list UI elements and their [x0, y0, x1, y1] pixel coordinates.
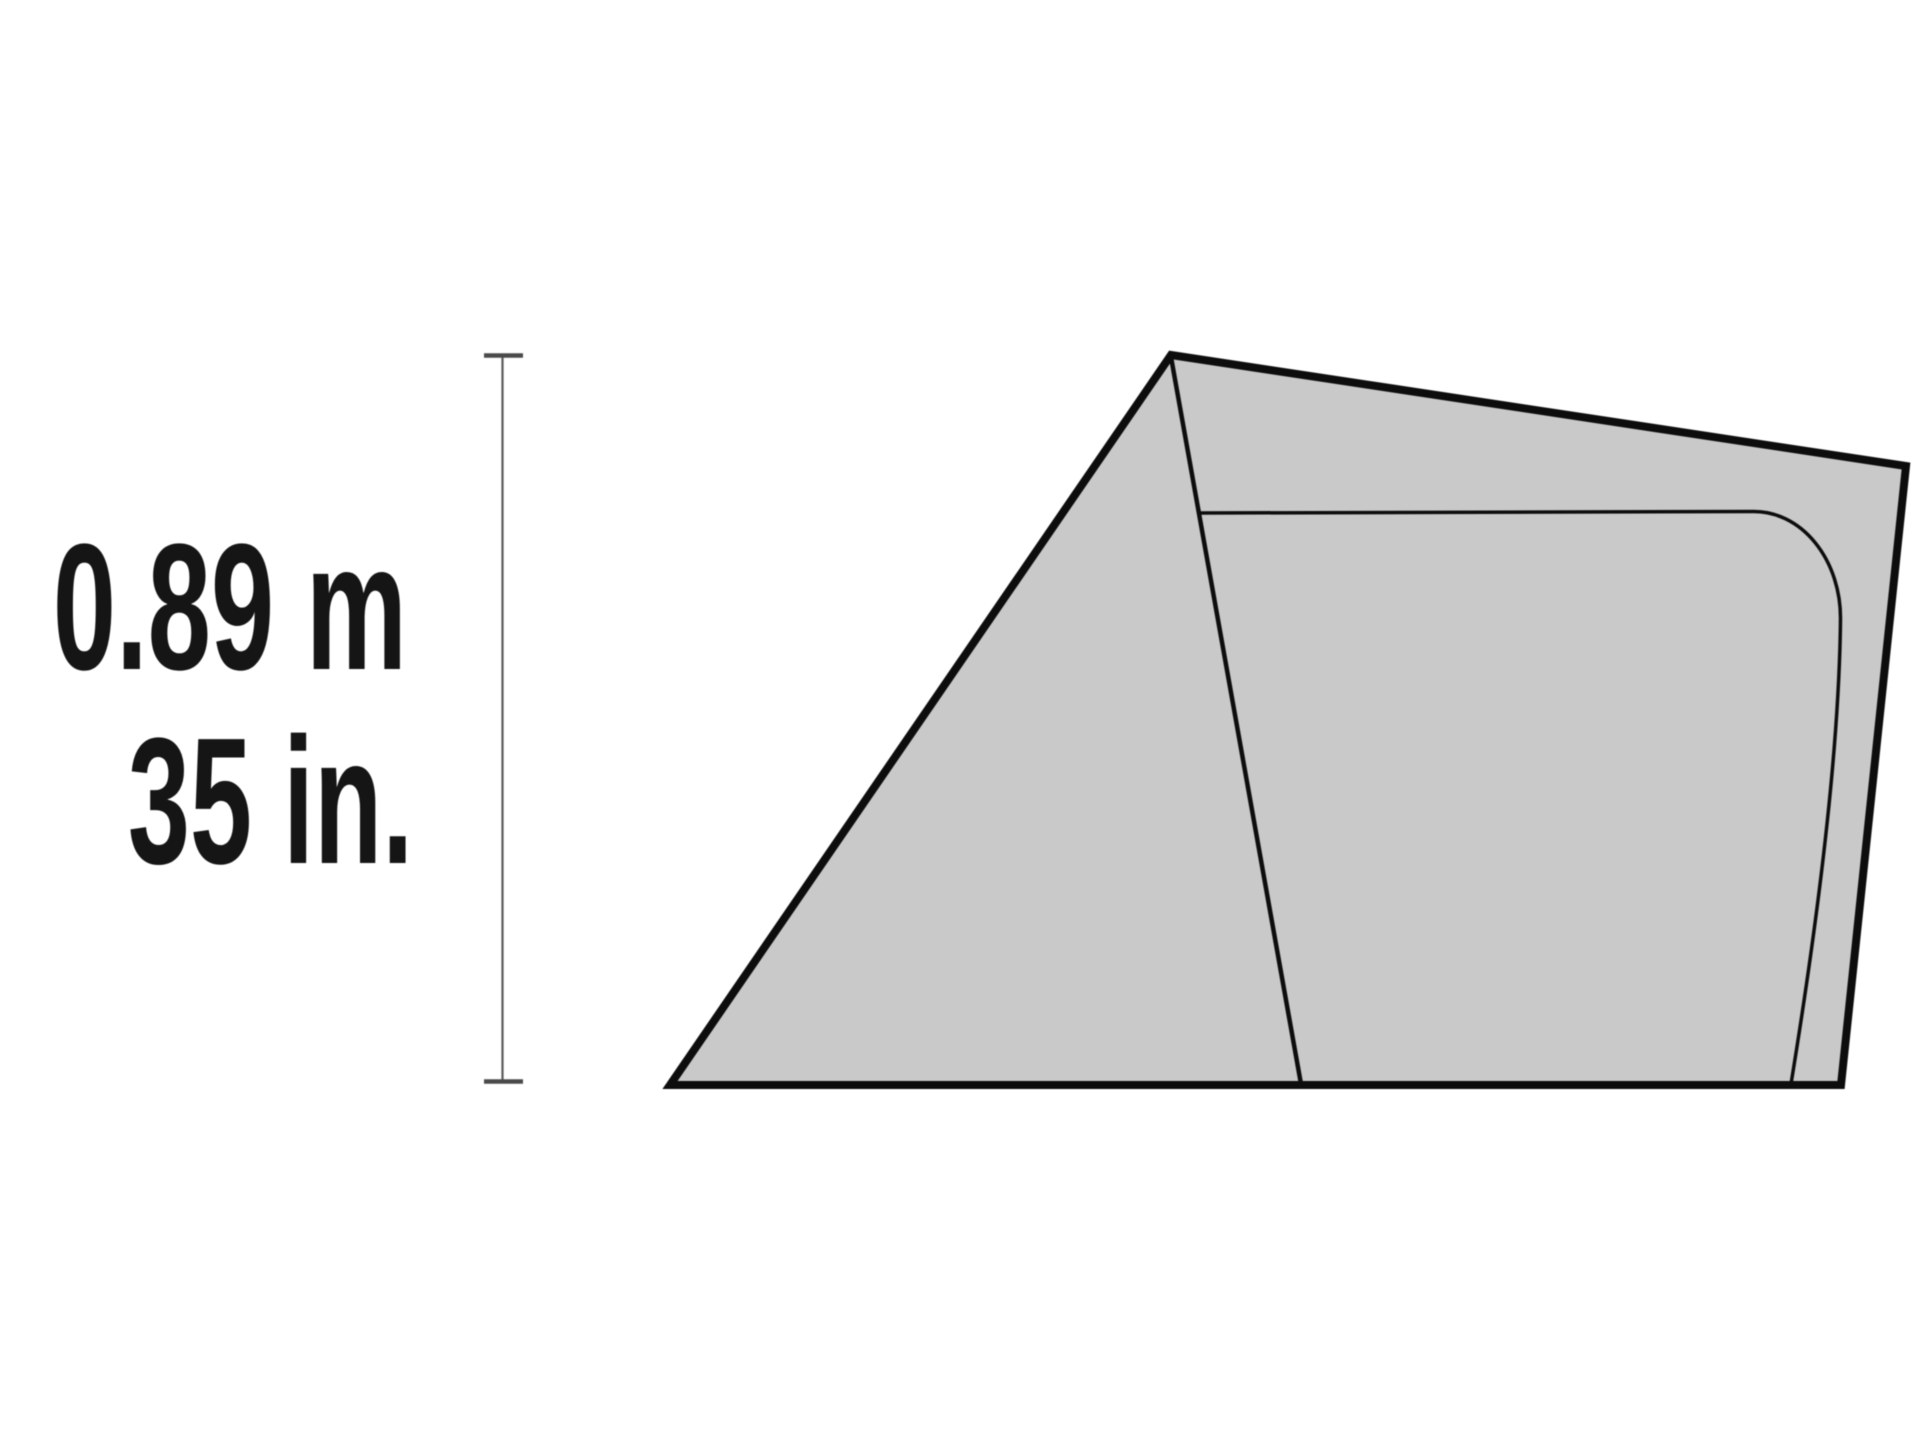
svg-text:0.89 m: 0.89 m: [53, 506, 407, 707]
svg-text:35 in.: 35 in.: [128, 700, 413, 902]
